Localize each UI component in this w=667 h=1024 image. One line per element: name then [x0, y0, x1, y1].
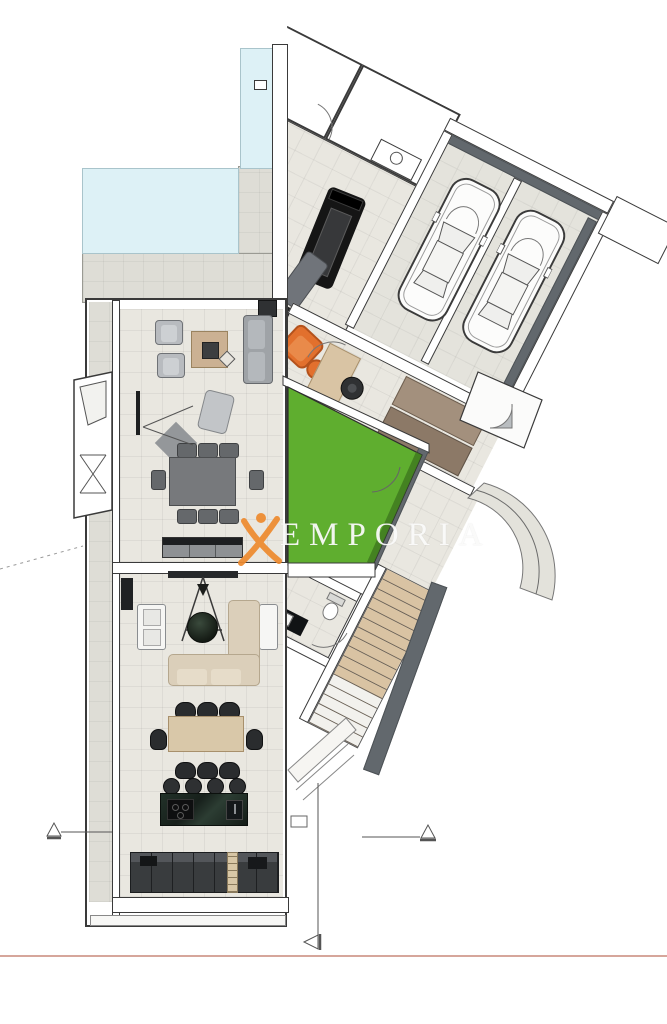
x-figure-icon — [234, 512, 286, 568]
boundary-marker — [304, 783, 320, 950]
watermark: EMPORIA — [234, 510, 494, 570]
floor-plan-canvas: EMPORIA — [0, 0, 667, 1024]
door-swing-lines — [143, 406, 193, 445]
level-marker-south — [362, 825, 436, 840]
utility-dashed-line — [0, 546, 83, 569]
level-marker-west — [47, 823, 112, 838]
lower-porch-wedge — [288, 718, 356, 782]
watermark-text: EMPORIA — [280, 517, 492, 554]
exterior-unit-box — [291, 816, 307, 827]
upper-porch — [460, 372, 542, 448]
